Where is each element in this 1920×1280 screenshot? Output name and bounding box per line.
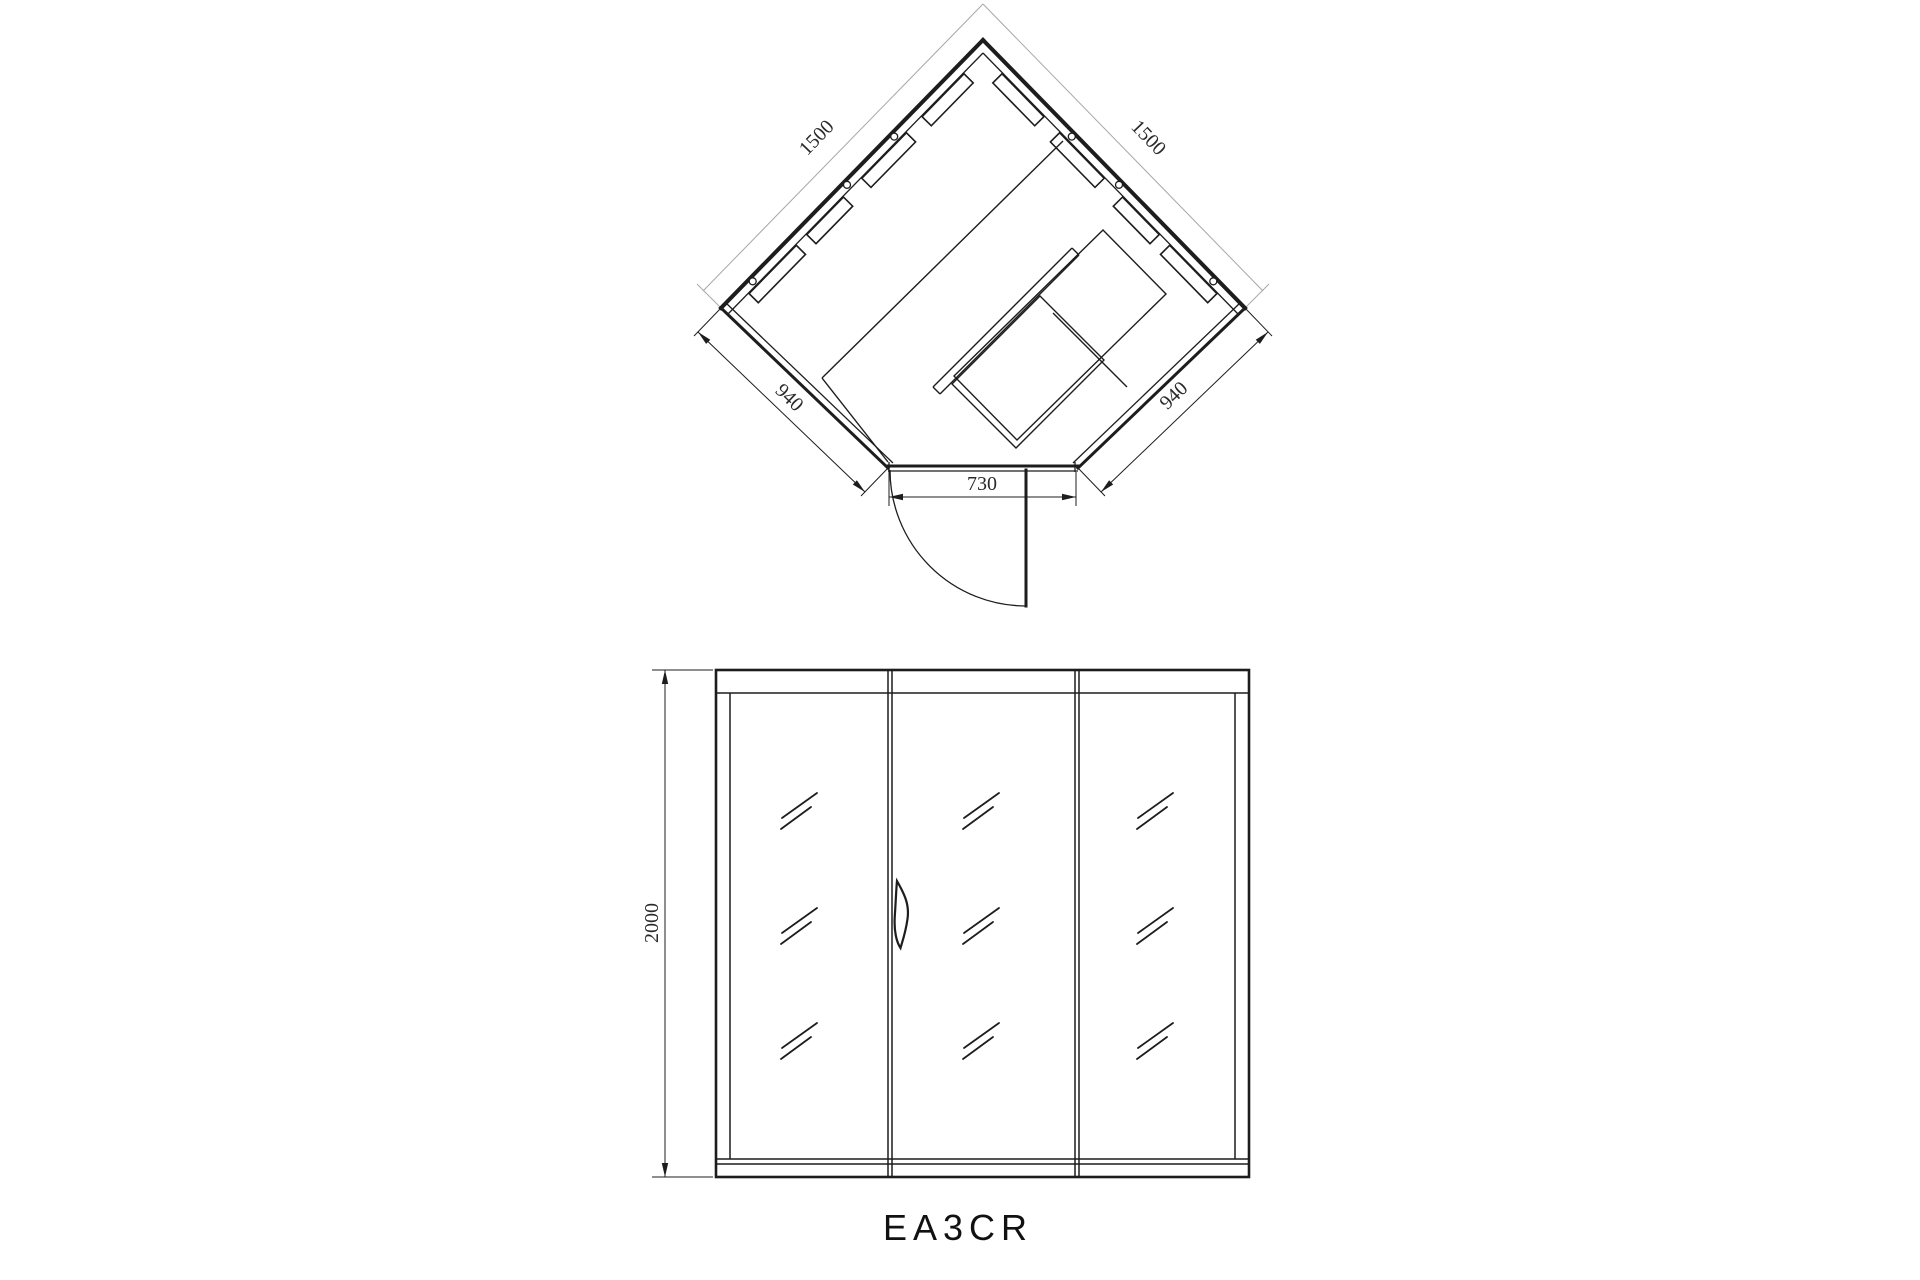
door-swing-arc — [890, 470, 1026, 606]
knob-icon — [1068, 133, 1075, 140]
dim-door-width-label: 730 — [967, 473, 997, 495]
plan-dim-730: 730 — [889, 472, 1076, 506]
plan-benches — [822, 141, 1166, 462]
plan-view: 730 940 940 1500 1500 — [694, 4, 1272, 606]
elevation-frame-lines — [716, 693, 1249, 1164]
plan-heater-panels-left — [749, 74, 973, 303]
knob-icon — [749, 278, 756, 285]
knob-icon — [844, 181, 851, 188]
plan-heater-panels-right — [993, 74, 1217, 303]
dim-wall-right-label: 1500 — [1127, 116, 1171, 160]
elevation-view: 2000 — [641, 670, 1249, 1177]
elevation-dim-2000: 2000 — [641, 670, 713, 1177]
glass-hatch-marks — [781, 793, 1173, 1059]
glass-panel-dividers — [888, 670, 1079, 1177]
plan-door — [890, 470, 1026, 606]
bench-cushion — [952, 296, 1104, 448]
knob-icon — [1210, 278, 1217, 285]
dim-front-right-label: 940 — [1155, 377, 1192, 414]
technical-drawing-canvas: 730 940 940 1500 1500 — [0, 0, 1920, 1280]
model-label: EA3CR — [883, 1207, 1033, 1248]
door-handle — [895, 881, 908, 948]
plan-dim-940-right: 940 — [1078, 308, 1272, 496]
knob-icon — [1116, 181, 1123, 188]
plan-dim-940-left: 940 — [694, 308, 888, 496]
drawing-sheet: 730 940 940 1500 1500 — [0, 0, 1920, 1280]
dim-height-label: 2000 — [641, 903, 663, 943]
knob-icon — [891, 133, 898, 140]
dim-wall-left-label: 1500 — [795, 116, 839, 160]
